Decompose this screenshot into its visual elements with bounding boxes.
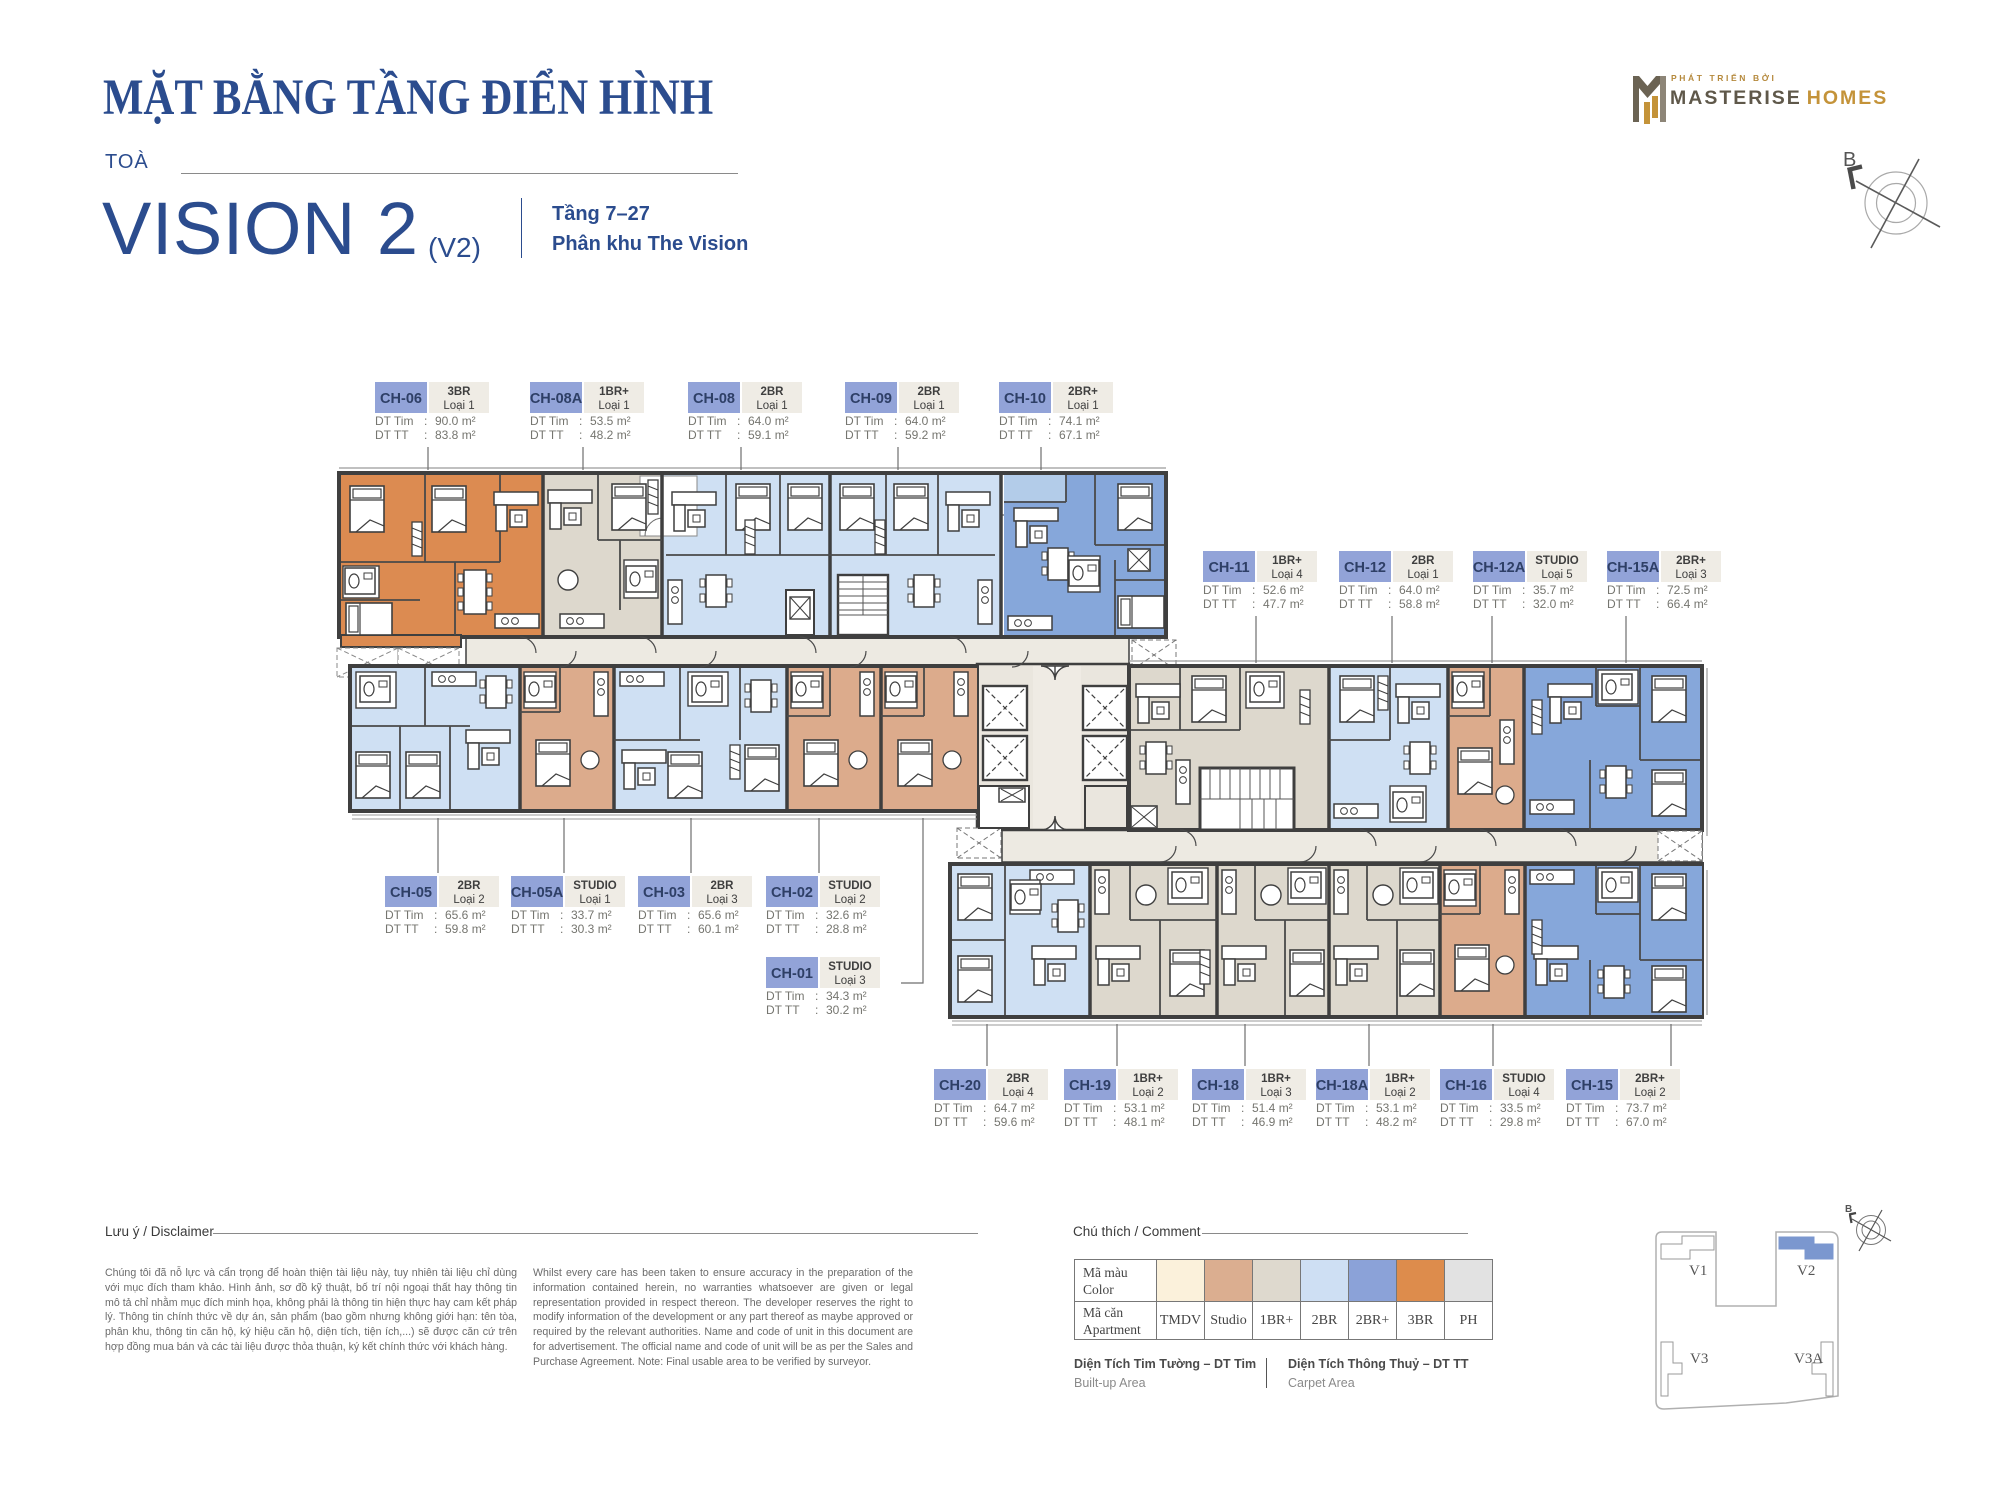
svg-text:30.2 m²: 30.2 m²: [826, 1003, 867, 1017]
svg-text:73.7 m²: 73.7 m²: [1626, 1101, 1667, 1115]
svg-text:DT TT: DT TT: [845, 428, 879, 442]
svg-text:67.1 m²: 67.1 m²: [1059, 428, 1100, 442]
svg-text:Loại 4: Loại 4: [1271, 569, 1303, 581]
svg-text:65.6 m²: 65.6 m²: [445, 908, 486, 922]
svg-text:58.8 m²: 58.8 m²: [1399, 597, 1440, 611]
svg-text:DT Tim: DT Tim: [688, 414, 726, 428]
svg-text:72.5 m²: 72.5 m²: [1667, 583, 1708, 597]
svg-text:52.6 m²: 52.6 m²: [1263, 583, 1304, 597]
svg-text:CH-09: CH-09: [850, 391, 892, 407]
svg-text:V1: V1: [1689, 1263, 1707, 1279]
svg-text::: :: [1656, 583, 1659, 597]
svg-text:DT Tim: DT Tim: [1607, 583, 1645, 597]
svg-text:Loại 2: Loại 2: [1384, 1087, 1415, 1099]
svg-text:29.8 m²: 29.8 m²: [1500, 1115, 1541, 1129]
svg-text::: :: [815, 922, 818, 936]
svg-text:48.2 m²: 48.2 m²: [590, 428, 631, 442]
svg-text:53.1 m²: 53.1 m²: [1376, 1101, 1417, 1115]
svg-text:CH-08: CH-08: [693, 391, 735, 407]
svg-text:47.7 m²: 47.7 m²: [1263, 597, 1304, 611]
svg-text::: :: [1241, 1115, 1244, 1129]
svg-text:Loại 3: Loại 3: [1675, 569, 1706, 581]
svg-text::: :: [579, 428, 582, 442]
svg-text:DT Tim: DT Tim: [766, 908, 804, 922]
svg-text:PHÁT TRIỂN BỞI: PHÁT TRIỂN BỞI: [1671, 72, 1777, 83]
svg-text:65.6 m²: 65.6 m²: [698, 908, 739, 922]
svg-text::: :: [1365, 1115, 1368, 1129]
svg-text::: :: [1252, 597, 1255, 611]
svg-text::: :: [560, 908, 563, 922]
svg-text::: :: [815, 989, 818, 1003]
svg-text:3BR: 3BR: [447, 386, 471, 398]
svg-text::: :: [815, 1003, 818, 1017]
svg-text:1BR+: 1BR+: [1272, 555, 1302, 567]
svg-text::: :: [1388, 583, 1391, 597]
svg-text::: :: [1365, 1101, 1368, 1115]
svg-text:64.0 m²: 64.0 m²: [905, 414, 946, 428]
svg-text:64.0 m²: 64.0 m²: [748, 414, 789, 428]
svg-text:DT TT: DT TT: [1440, 1115, 1474, 1129]
svg-text:DT TT: DT TT: [999, 428, 1033, 442]
svg-text:51.4 m²: 51.4 m²: [1252, 1101, 1293, 1115]
svg-text:V2: V2: [1797, 1263, 1815, 1279]
svg-text::: :: [560, 922, 563, 936]
svg-text:Loại 1: Loại 1: [1407, 569, 1438, 581]
svg-text:59.6 m²: 59.6 m²: [994, 1115, 1035, 1129]
svg-text:Loại 1: Loại 1: [756, 400, 787, 412]
svg-text:CH-01: CH-01: [771, 966, 813, 982]
svg-text:32.0 m²: 32.0 m²: [1533, 597, 1574, 611]
svg-text::: :: [1522, 583, 1525, 597]
svg-text:CH-16: CH-16: [1445, 1078, 1487, 1094]
svg-text:2BR: 2BR: [1006, 1073, 1030, 1085]
svg-text:DT Tim: DT Tim: [638, 908, 676, 922]
svg-text:1BR+: 1BR+: [599, 386, 629, 398]
svg-text:CH-10: CH-10: [1004, 391, 1046, 407]
svg-text::: :: [1241, 1101, 1244, 1115]
svg-text:53.5 m²: 53.5 m²: [590, 414, 631, 428]
svg-text:DT Tim: DT Tim: [1192, 1101, 1230, 1115]
svg-text:Loại 2: Loại 2: [453, 894, 484, 906]
svg-text::: :: [687, 908, 690, 922]
svg-text:CH-18: CH-18: [1197, 1078, 1239, 1094]
svg-text:66.4 m²: 66.4 m²: [1667, 597, 1708, 611]
svg-text:Loại 2: Loại 2: [1132, 1087, 1163, 1099]
svg-text::: :: [1489, 1115, 1492, 1129]
svg-text:2BR+: 2BR+: [1676, 555, 1706, 567]
svg-text:Loại 1: Loại 1: [913, 400, 944, 412]
svg-text:2BR: 2BR: [457, 880, 481, 892]
svg-text::: :: [894, 414, 897, 428]
svg-text::: :: [1252, 583, 1255, 597]
svg-text::: :: [1113, 1101, 1116, 1115]
svg-text:DT TT: DT TT: [766, 922, 800, 936]
svg-text:DT Tim: DT Tim: [1064, 1101, 1102, 1115]
svg-text:DT Tim: DT Tim: [1566, 1101, 1604, 1115]
svg-text:DT Tim: DT Tim: [934, 1101, 972, 1115]
svg-text:Loại 2: Loại 2: [1634, 1087, 1665, 1099]
svg-text:STUDIO: STUDIO: [573, 880, 617, 892]
svg-text:Loại 1: Loại 1: [598, 400, 629, 412]
svg-text:64.7 m²: 64.7 m²: [994, 1101, 1035, 1115]
svg-text:DT Tim: DT Tim: [385, 908, 423, 922]
svg-text:DT TT: DT TT: [375, 428, 409, 442]
svg-text:48.1 m²: 48.1 m²: [1124, 1115, 1165, 1129]
svg-text:35.7 m²: 35.7 m²: [1533, 583, 1574, 597]
svg-text:DT TT: DT TT: [934, 1115, 968, 1129]
svg-text:53.1 m²: 53.1 m²: [1124, 1101, 1165, 1115]
svg-text:CH-12: CH-12: [1344, 560, 1386, 576]
svg-text::: :: [1615, 1101, 1618, 1115]
svg-text:DT TT: DT TT: [1192, 1115, 1226, 1129]
svg-text::: :: [737, 414, 740, 428]
svg-text:CH-02: CH-02: [771, 885, 813, 901]
svg-text:59.8 m²: 59.8 m²: [445, 922, 486, 936]
svg-text::: :: [434, 908, 437, 922]
svg-text:CH-11: CH-11: [1208, 560, 1249, 576]
svg-text:MASTERISEHOMES: MASTERISEHOMES: [1670, 87, 1888, 109]
svg-text:Loại 1: Loại 1: [1067, 400, 1098, 412]
svg-text:CH-20: CH-20: [939, 1078, 981, 1094]
svg-text:CH-05A: CH-05A: [511, 885, 564, 901]
svg-text:CH-06: CH-06: [380, 391, 422, 407]
svg-text:Loại 3: Loại 3: [1260, 1087, 1291, 1099]
svg-text:DT TT: DT TT: [1607, 597, 1641, 611]
svg-text:32.6 m²: 32.6 m²: [826, 908, 867, 922]
svg-text:DT TT: DT TT: [766, 1003, 800, 1017]
svg-text::: :: [424, 414, 427, 428]
svg-text::: :: [1656, 597, 1659, 611]
svg-text:90.0 m²: 90.0 m²: [435, 414, 476, 428]
svg-text:DT TT: DT TT: [688, 428, 722, 442]
svg-text:STUDIO: STUDIO: [828, 880, 872, 892]
svg-text:1BR+: 1BR+: [1133, 1073, 1163, 1085]
svg-text:46.9 m²: 46.9 m²: [1252, 1115, 1293, 1129]
svg-text:1BR+: 1BR+: [1385, 1073, 1415, 1085]
svg-text:2BR: 2BR: [917, 386, 941, 398]
svg-text:74.1 m²: 74.1 m²: [1059, 414, 1100, 428]
svg-text::: :: [424, 428, 427, 442]
svg-text:2BR: 2BR: [1411, 555, 1435, 567]
svg-text:DT Tim: DT Tim: [530, 414, 568, 428]
svg-text::: :: [737, 428, 740, 442]
svg-text:STUDIO: STUDIO: [1502, 1073, 1546, 1085]
svg-text:Loại 3: Loại 3: [834, 975, 865, 987]
svg-text:Loại 5: Loại 5: [1541, 569, 1572, 581]
svg-text:DT Tim: DT Tim: [1339, 583, 1377, 597]
svg-text:CH-18A: CH-18A: [1316, 1078, 1369, 1094]
svg-text::: :: [983, 1115, 986, 1129]
svg-text::: :: [579, 414, 582, 428]
svg-text:DT Tim: DT Tim: [999, 414, 1037, 428]
svg-text:DT Tim: DT Tim: [1440, 1101, 1478, 1115]
svg-text:DT Tim: DT Tim: [511, 908, 549, 922]
svg-text:83.8 m²: 83.8 m²: [435, 428, 476, 442]
svg-text:CH-15A: CH-15A: [1607, 560, 1660, 576]
svg-text::: :: [983, 1101, 986, 1115]
svg-text:DT Tim: DT Tim: [375, 414, 413, 428]
svg-text:STUDIO: STUDIO: [828, 961, 872, 973]
svg-text:DT Tim: DT Tim: [1316, 1101, 1354, 1115]
svg-text::: :: [1615, 1115, 1618, 1129]
svg-text:33.7 m²: 33.7 m²: [571, 908, 612, 922]
svg-text:33.5 m²: 33.5 m²: [1500, 1101, 1541, 1115]
svg-text:DT TT: DT TT: [1203, 597, 1237, 611]
svg-text:DT TT: DT TT: [1473, 597, 1507, 611]
svg-text::: :: [1048, 414, 1051, 428]
svg-text:CH-12A: CH-12A: [1473, 560, 1526, 576]
svg-text:34.3 m²: 34.3 m²: [826, 989, 867, 1003]
svg-text:2BR+: 2BR+: [1068, 386, 1098, 398]
svg-text::: :: [687, 922, 690, 936]
svg-text:DT TT: DT TT: [1339, 597, 1373, 611]
svg-text:59.1 m²: 59.1 m²: [748, 428, 789, 442]
svg-text:CH-19: CH-19: [1069, 1078, 1111, 1094]
svg-text:DT Tim: DT Tim: [766, 989, 804, 1003]
svg-text::: :: [434, 922, 437, 936]
svg-text::: :: [1388, 597, 1391, 611]
svg-text::: :: [1113, 1115, 1116, 1129]
svg-text:V3: V3: [1690, 1351, 1708, 1367]
svg-text:DT TT: DT TT: [1316, 1115, 1350, 1129]
svg-text:60.1 m²: 60.1 m²: [698, 922, 739, 936]
svg-text::: :: [1048, 428, 1051, 442]
svg-text:CH-08A: CH-08A: [530, 391, 583, 407]
svg-text:Loại 1: Loại 1: [443, 400, 474, 412]
svg-text:Loại 1: Loại 1: [579, 894, 610, 906]
svg-text::: :: [1489, 1101, 1492, 1115]
svg-text:CH-15: CH-15: [1571, 1078, 1613, 1094]
svg-text:DT Tim: DT Tim: [1203, 583, 1241, 597]
svg-text:Loại 4: Loại 4: [1508, 1087, 1540, 1099]
svg-text:STUDIO: STUDIO: [1535, 555, 1579, 567]
svg-text::: :: [894, 428, 897, 442]
svg-text:Loại 4: Loại 4: [1002, 1087, 1034, 1099]
svg-text:DT TT: DT TT: [1566, 1115, 1600, 1129]
svg-text:28.8 m²: 28.8 m²: [826, 922, 867, 936]
svg-text:48.2 m²: 48.2 m²: [1376, 1115, 1417, 1129]
svg-text:59.2 m²: 59.2 m²: [905, 428, 946, 442]
svg-text::: :: [815, 908, 818, 922]
svg-text:CH-05: CH-05: [390, 885, 432, 901]
svg-text:2BR: 2BR: [760, 386, 784, 398]
svg-text:Loại 2: Loại 2: [834, 894, 865, 906]
svg-text:DT TT: DT TT: [1064, 1115, 1098, 1129]
svg-text:DT Tim: DT Tim: [845, 414, 883, 428]
svg-text::: :: [1522, 597, 1525, 611]
svg-text:DT TT: DT TT: [511, 922, 545, 936]
svg-text:30.3 m²: 30.3 m²: [571, 922, 612, 936]
svg-text:2BR+: 2BR+: [1635, 1073, 1665, 1085]
svg-text:1BR+: 1BR+: [1261, 1073, 1291, 1085]
svg-text:V3A: V3A: [1794, 1351, 1823, 1367]
svg-text:67.0 m²: 67.0 m²: [1626, 1115, 1667, 1129]
svg-text:CH-03: CH-03: [643, 885, 685, 901]
svg-text:DT TT: DT TT: [385, 922, 419, 936]
svg-text:DT Tim: DT Tim: [1473, 583, 1511, 597]
svg-text:DT TT: DT TT: [530, 428, 564, 442]
svg-text:64.0 m²: 64.0 m²: [1399, 583, 1440, 597]
svg-text:2BR: 2BR: [710, 880, 734, 892]
svg-text:DT TT: DT TT: [638, 922, 672, 936]
svg-text:Loại 3: Loại 3: [706, 894, 737, 906]
